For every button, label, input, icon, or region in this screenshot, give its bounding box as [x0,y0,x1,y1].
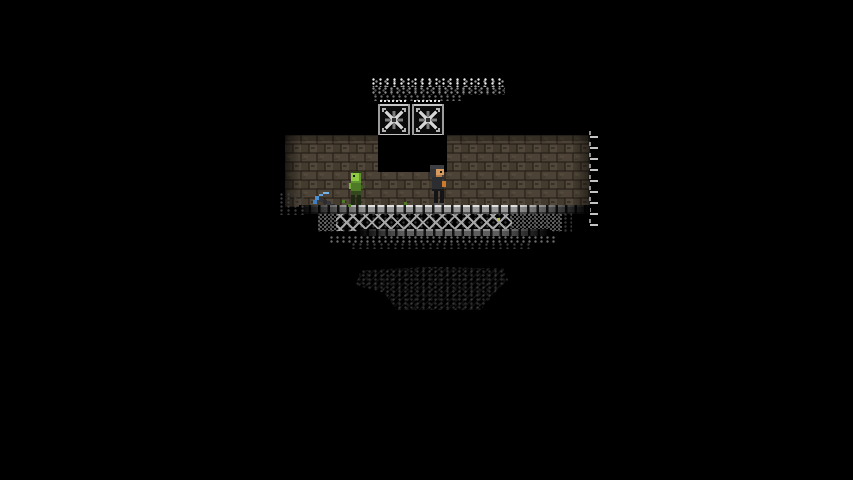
truss-fade-left [318,214,338,231]
under-bridge-dither-faint [352,243,532,249]
ladder-rung-mark [589,155,599,160]
ladder-rung-mark [589,133,599,138]
player-character [426,165,448,207]
fan-block-right[interactable] [412,100,444,136]
faint-terrain-below [356,266,508,310]
under-bridge-dither [330,236,558,243]
fan-icon [412,100,444,136]
ladder-rung-mark [589,188,599,193]
ladder-rung-mark [589,144,599,149]
ladder-rung-mark [589,177,599,182]
ore-glint-pixel [497,218,500,221]
fan-block-left[interactable] [378,100,410,136]
moss-pixel [348,204,351,207]
ladder-rung-mark [589,199,599,204]
ladder-rung-mark [589,221,599,226]
bottom-platform-rail[interactable] [357,229,550,236]
moss-pixel [342,200,345,203]
dust-dither-top-mid [372,87,505,95]
ladder-rung-mark [589,166,599,171]
player-sprite [426,165,448,207]
dust-dither-top-bright [372,78,505,87]
left-edge-dither [280,193,304,215]
fan-icon [378,100,410,136]
ladder-right[interactable] [589,133,602,237]
moss-pixel [404,202,407,205]
game-viewport[interactable] [0,0,853,480]
zombie-sprite [347,171,367,207]
zombie-enemy[interactable] [347,171,367,207]
ladder-rung-mark [589,210,599,215]
